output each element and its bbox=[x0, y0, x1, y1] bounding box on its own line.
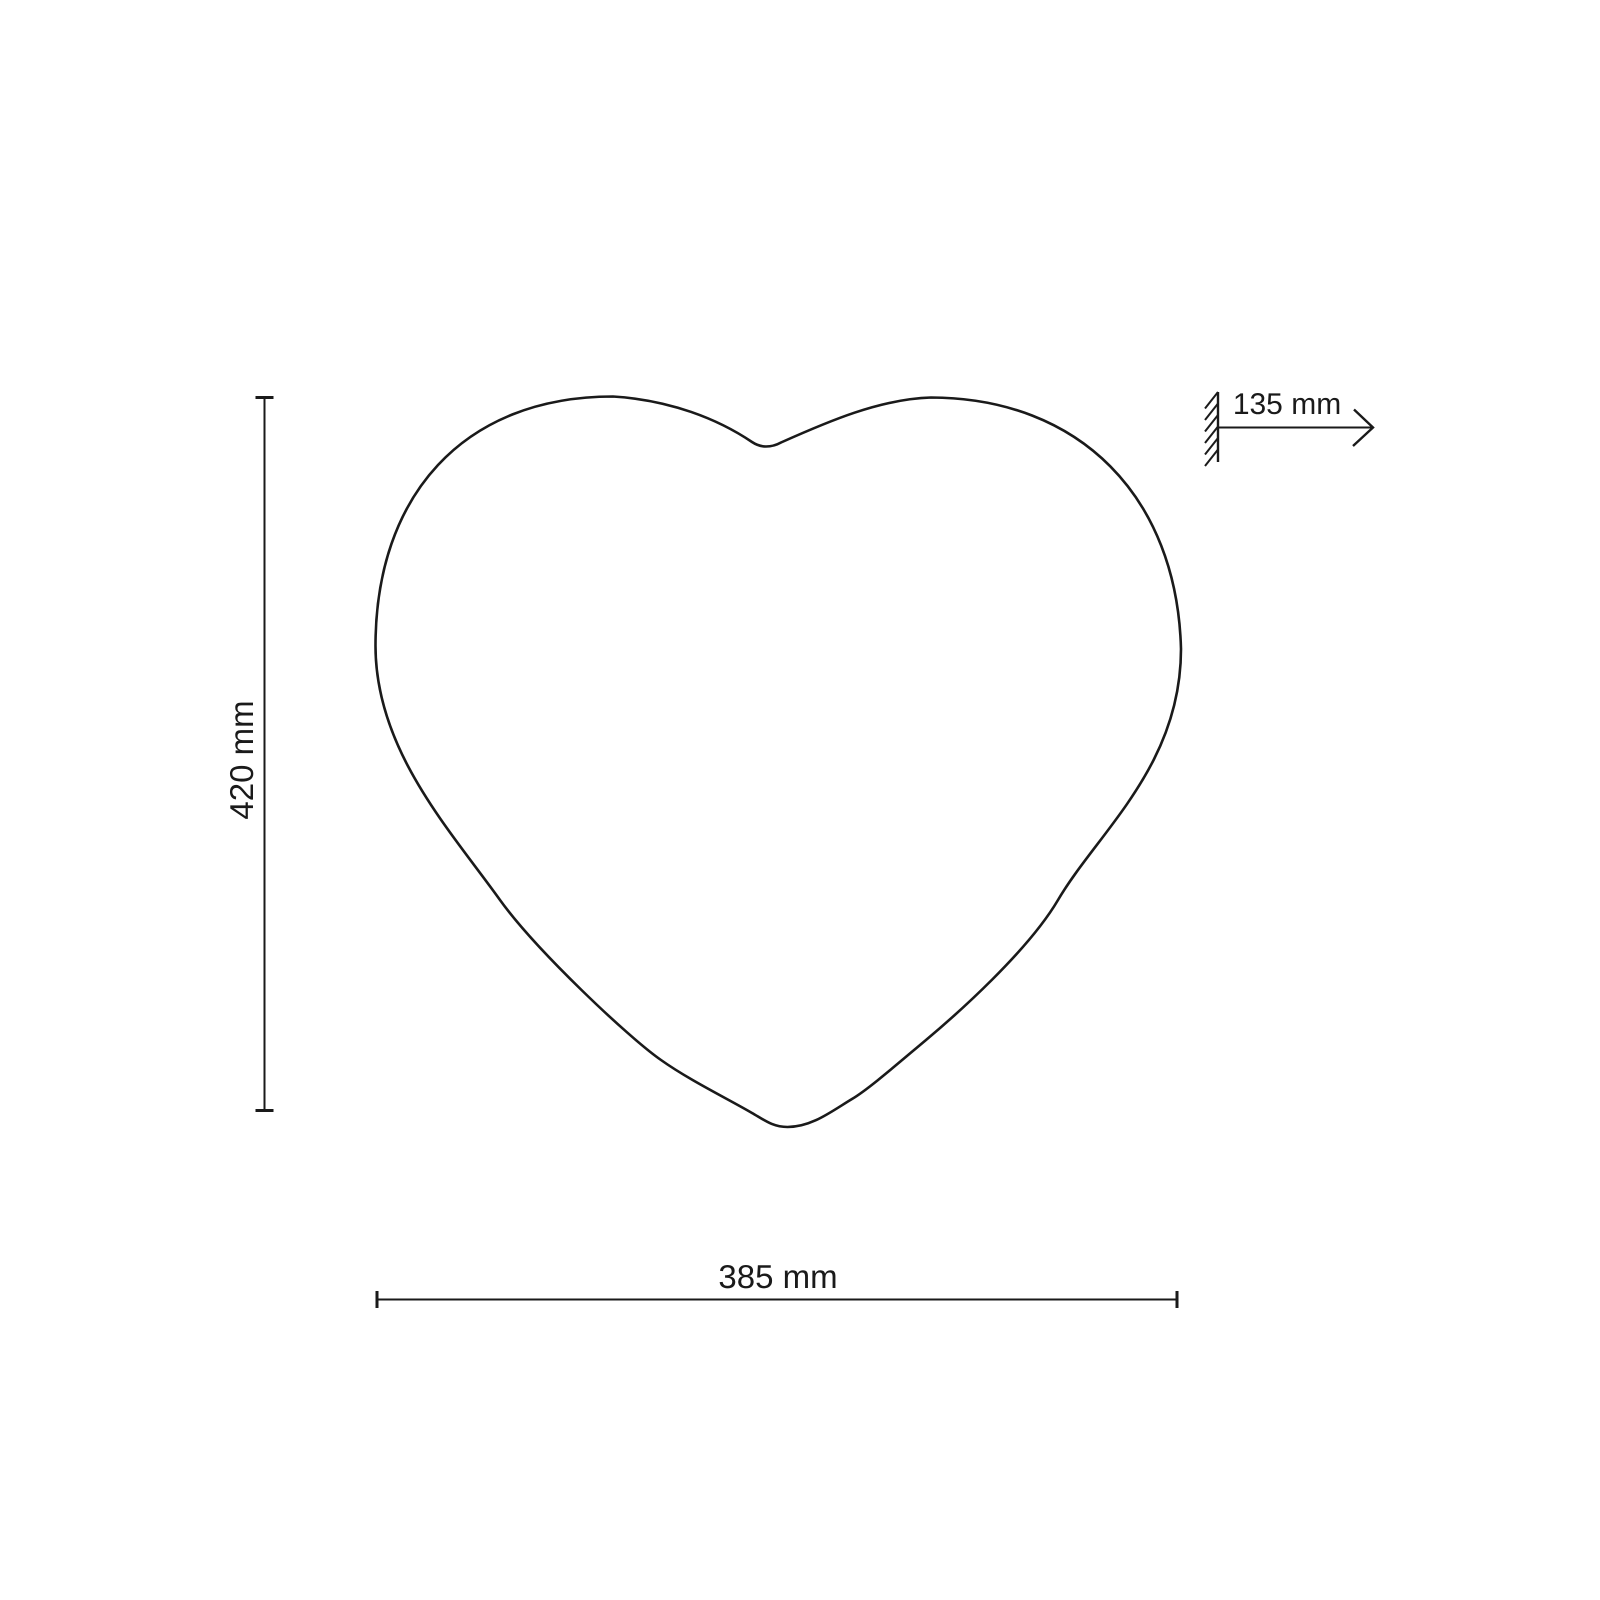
svg-text:135 mm: 135 mm bbox=[1233, 388, 1341, 421]
svg-text:420 mm: 420 mm bbox=[223, 700, 260, 819]
svg-text:385 mm: 385 mm bbox=[718, 1258, 837, 1295]
